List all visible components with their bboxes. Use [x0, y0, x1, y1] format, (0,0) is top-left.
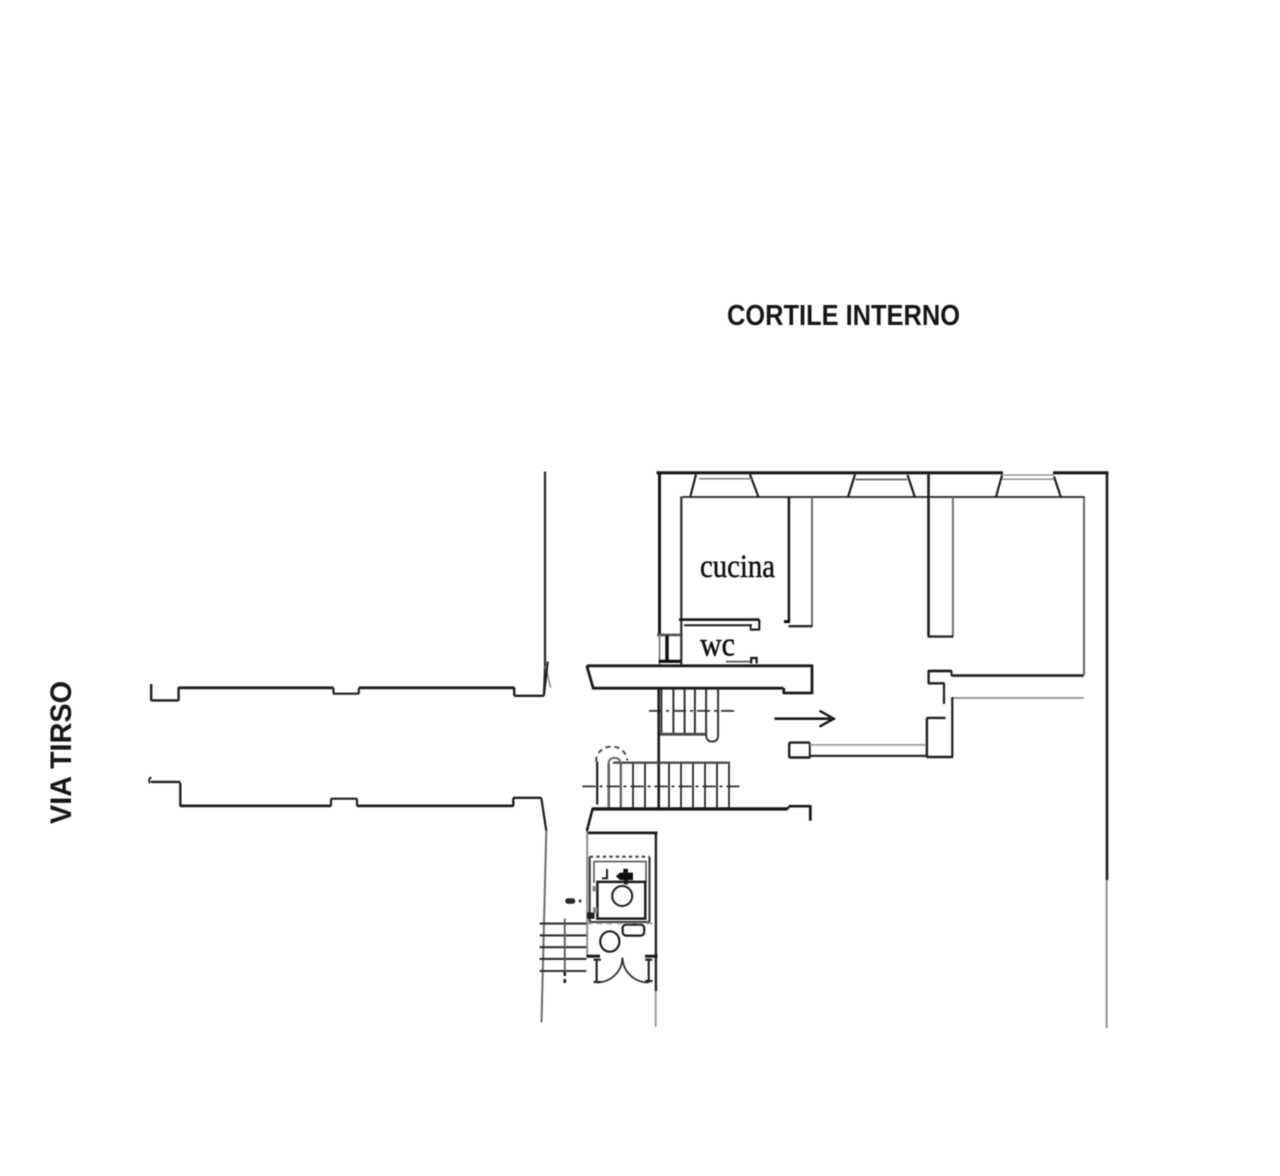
svg-text:VIA TIRSO: VIA TIRSO: [45, 681, 78, 824]
svg-text:cucina: cucina: [700, 549, 775, 585]
svg-text:CORTILE INTERNO: CORTILE INTERNO: [727, 300, 960, 332]
svg-text:wc: wc: [700, 627, 735, 664]
